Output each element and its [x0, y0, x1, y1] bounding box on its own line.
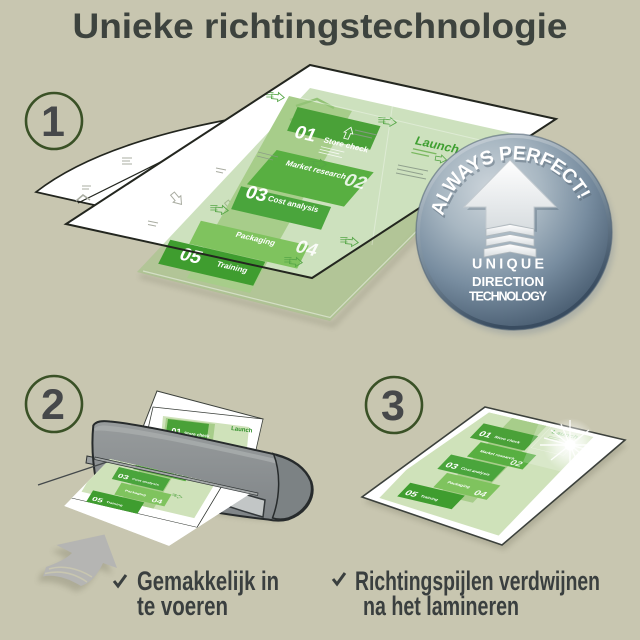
svg-text:TECHNOLOGY: TECHNOLOGY [469, 290, 548, 304]
svg-text:te voeren: te voeren [137, 591, 228, 621]
svg-text:1: 1 [41, 98, 65, 146]
svg-text:na het lamineren: na het lamineren [363, 591, 519, 621]
svg-text:DIRECTION: DIRECTION [472, 274, 544, 289]
svg-text:2: 2 [41, 381, 65, 429]
svg-text:3: 3 [381, 382, 405, 430]
svg-text:Unieke richtingstechnologie: Unieke richtingstechnologie [73, 7, 568, 46]
